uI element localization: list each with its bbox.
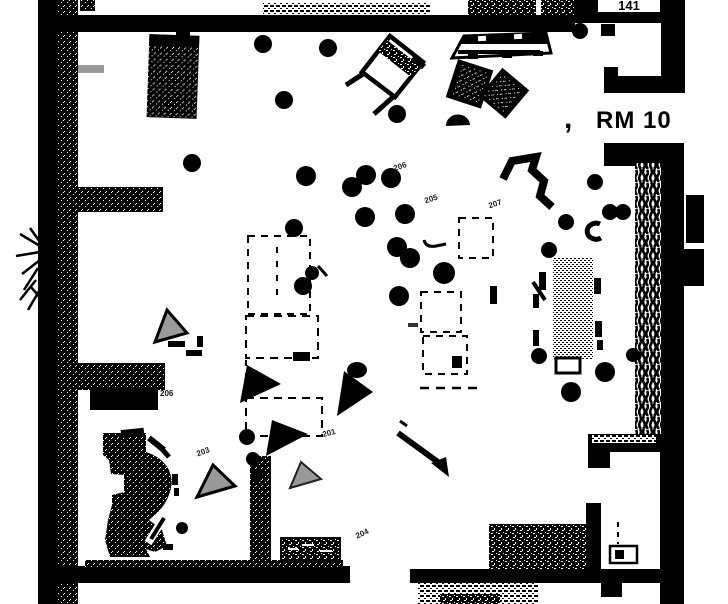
svg-text:141: 141: [618, 0, 640, 13]
svg-text:RM 10: RM 10: [596, 107, 672, 134]
svg-text:206: 206: [160, 389, 174, 398]
svg-text:,: ,: [564, 102, 572, 135]
